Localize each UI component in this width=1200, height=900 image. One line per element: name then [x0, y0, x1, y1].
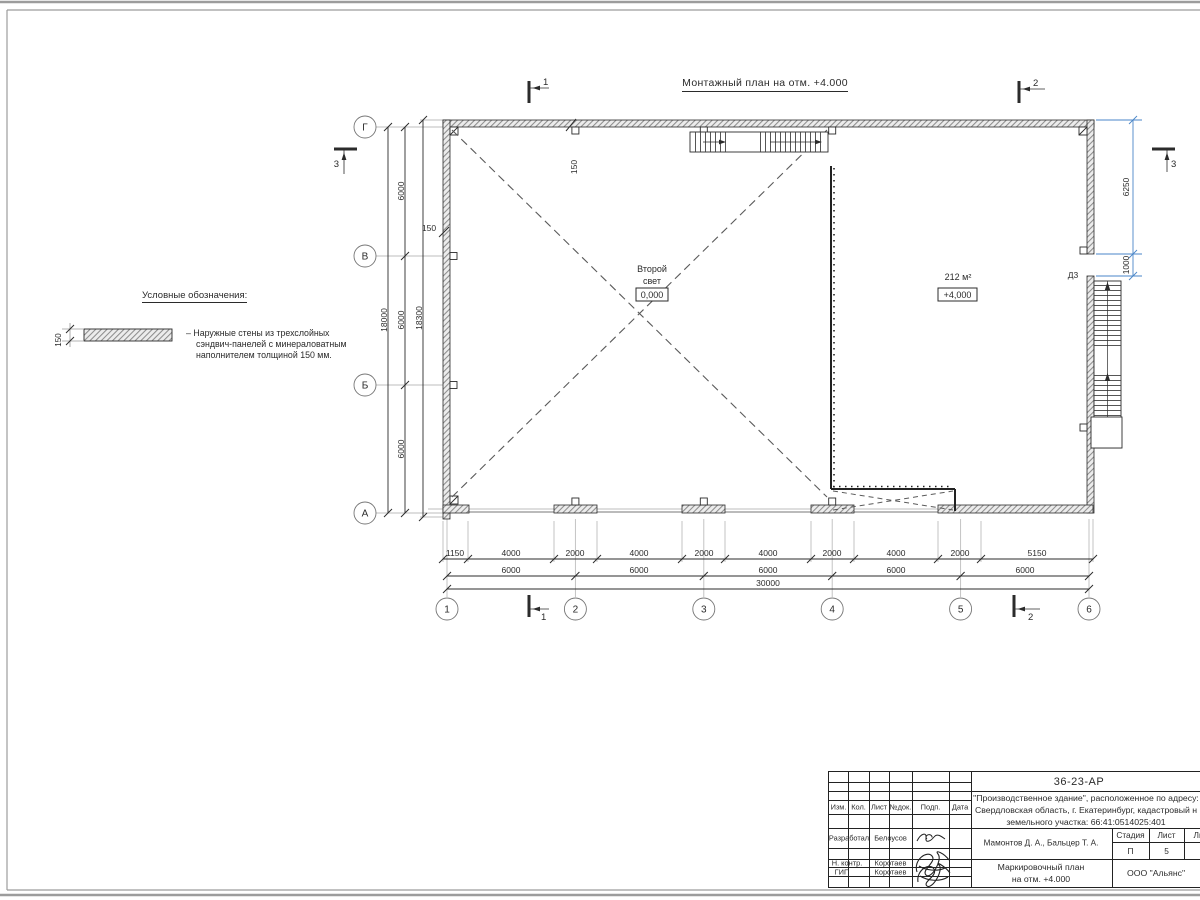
room-left-level: 0,000 [641, 290, 664, 300]
title-block: Изм. Кол. Лист №док. Подп. Дата Разработ… [828, 771, 1200, 888]
room-annotations: Второй свет 0,000 212 м² +4,000 Д3 [636, 264, 1079, 301]
dim-b1-9: 5150 [1028, 548, 1047, 558]
tb-project-line-3: земельного участка: 66:41:0514025:401 [1006, 817, 1165, 827]
section-3-right-label: 3 [1171, 159, 1176, 170]
dim-b2-3: 6000 [887, 565, 906, 575]
room-left-label-2: свет [643, 276, 661, 286]
axis-col-4: 4 [829, 605, 835, 616]
tb-name-korotaev-2: Коротаев [875, 867, 907, 876]
dim-wall-150-top: 150 [569, 160, 579, 174]
axis-bubble-labels: Г В Б А 1 2 3 4 5 6 [362, 123, 1093, 616]
tb-header-izm: Изм. [831, 803, 847, 812]
dim-b1-0: 1150 [446, 548, 465, 558]
axis-col-2: 2 [573, 605, 579, 616]
dim-b1-5: 4000 [759, 548, 778, 558]
blue-dimensions [1096, 116, 1142, 280]
dimension-ticks [384, 116, 1097, 593]
tb-header-ndok: №док. [890, 803, 912, 812]
tb-name-belousov: Белоусов [874, 834, 907, 843]
axis-col-6: 6 [1086, 605, 1092, 616]
tb-drawing-title-1: Маркировочный план [998, 862, 1085, 872]
room-right-level: +4,000 [944, 290, 972, 300]
dim-b1-1: 4000 [502, 548, 521, 558]
tb-authors: Мамонтов Д. А., Бальцер Т. А. [984, 839, 1099, 848]
legend-text-line-2: сэндвич-панелей с минераловатным [196, 339, 347, 349]
dim-b2-0: 6000 [502, 565, 521, 575]
axis-col-1: 1 [444, 605, 450, 616]
dim-wall-150-left: 150 [422, 223, 436, 233]
axis-row-v: В [362, 252, 369, 263]
section-2-bottom-label: 2 [1028, 612, 1033, 623]
tb-sheet-value: 5 [1164, 846, 1169, 856]
dim-left-bay-1: 6000 [396, 181, 406, 200]
columns [450, 127, 1087, 505]
dim-b1-4: 2000 [695, 548, 714, 558]
room-right-area: 212 м² [945, 272, 972, 282]
room-left-label-1: Второй [637, 264, 667, 274]
tb-header-data: Дата [952, 803, 968, 812]
exterior-walls [443, 120, 1094, 519]
signature-korotaev-2-icon [913, 860, 955, 890]
section-markers: 1 2 1 2 3 3 [334, 77, 1177, 623]
tb-stage-header: Стадия [1116, 830, 1144, 840]
drawing-sheet: 18000 6000 6000 6000 18300 150 150 1150 … [0, 0, 1200, 900]
dim-b1-8: 2000 [951, 548, 970, 558]
dim-right-upper: 6250 [1121, 177, 1131, 196]
tb-role-gip: ГИП [835, 867, 850, 876]
dim-b2-4: 6000 [1016, 565, 1035, 575]
floor-plan-canvas: 18000 6000 6000 6000 18300 150 150 1150 … [0, 0, 1200, 900]
dim-bottom-total: 30000 [756, 578, 780, 588]
legend-heading: Условные обозначения: [142, 290, 247, 303]
interior-stair [690, 132, 828, 152]
axis-row-b: Б [362, 381, 369, 392]
section-1-bottom-label: 1 [541, 612, 546, 623]
opening-diagonals [833, 491, 953, 510]
legend-thickness: 150 [54, 333, 63, 347]
sheet-frame [0, 2, 1200, 895]
tb-role-nkontr: Н. контр. [832, 858, 863, 867]
plan-title: Монтажный план на отм. +4.000 [649, 77, 881, 92]
dim-b1-6: 2000 [823, 548, 842, 558]
tb-header-podp: Подп. [921, 803, 941, 812]
legend-text-line-3: наполнителем толщиной 150 мм. [196, 350, 332, 360]
tb-role-razrabotal: Разработал [829, 834, 869, 843]
dim-b2-2: 6000 [759, 565, 778, 575]
tb-header-kol: Кол. [851, 803, 866, 812]
tb-sheets-header: Листов [1194, 830, 1200, 840]
axis-col-5: 5 [958, 605, 964, 616]
tb-sheet-header: Лист [1157, 830, 1175, 840]
void-diagonals [452, 130, 827, 497]
dim-b1-3: 4000 [630, 548, 649, 558]
exterior-stair [1091, 281, 1122, 448]
tb-project-line-2: Свердловская область, г. Екатеринбург, к… [975, 805, 1197, 815]
dimension-lines [388, 120, 1093, 589]
section-1-top-label: 1 [543, 77, 548, 88]
tb-name-korotaev-1: Коротаев [875, 858, 907, 867]
dim-left-bay-2: 6000 [396, 310, 406, 329]
grid-lines [376, 120, 1094, 597]
section-3-left-label: 3 [334, 159, 339, 170]
tb-project-line-1: "Производственное здание", расположенное… [973, 793, 1199, 803]
dim-b1-7: 4000 [887, 548, 906, 558]
tb-header-list: Лист [871, 803, 887, 812]
signature-belousov-icon [914, 830, 948, 846]
axis-row-g: Г [362, 123, 368, 134]
tb-stage-value: П [1128, 846, 1134, 856]
dim-left-overall: 18300 [414, 306, 424, 330]
dim-right-door: 1000 [1121, 255, 1131, 274]
axis-row-a: А [362, 509, 369, 520]
section-2-top-label: 2 [1033, 78, 1038, 89]
legend-text-line-1: – Наружные стены из трехслойных [186, 328, 329, 338]
door-label: Д3 [1068, 270, 1079, 280]
dim-b1-2: 2000 [566, 548, 585, 558]
dim-b2-1: 6000 [630, 565, 649, 575]
interior-partition [831, 166, 955, 511]
axis-col-3: 3 [701, 605, 707, 616]
blue-dimension-texts: 6250 1000 [1121, 177, 1131, 274]
legend-sample: 150 [54, 323, 172, 347]
dimension-texts: 18000 6000 6000 6000 18300 150 150 1150 … [379, 160, 1047, 588]
axis-bubbles [354, 116, 1100, 620]
dim-left-bay-3: 6000 [396, 439, 406, 458]
tb-doc-number: 36-23-АР [1054, 776, 1104, 788]
dim-left-total: 18000 [379, 308, 389, 332]
tb-drawing-title-2: на отм. +4.000 [1012, 874, 1070, 884]
tb-company: ООО "Альянс" [1127, 868, 1185, 878]
